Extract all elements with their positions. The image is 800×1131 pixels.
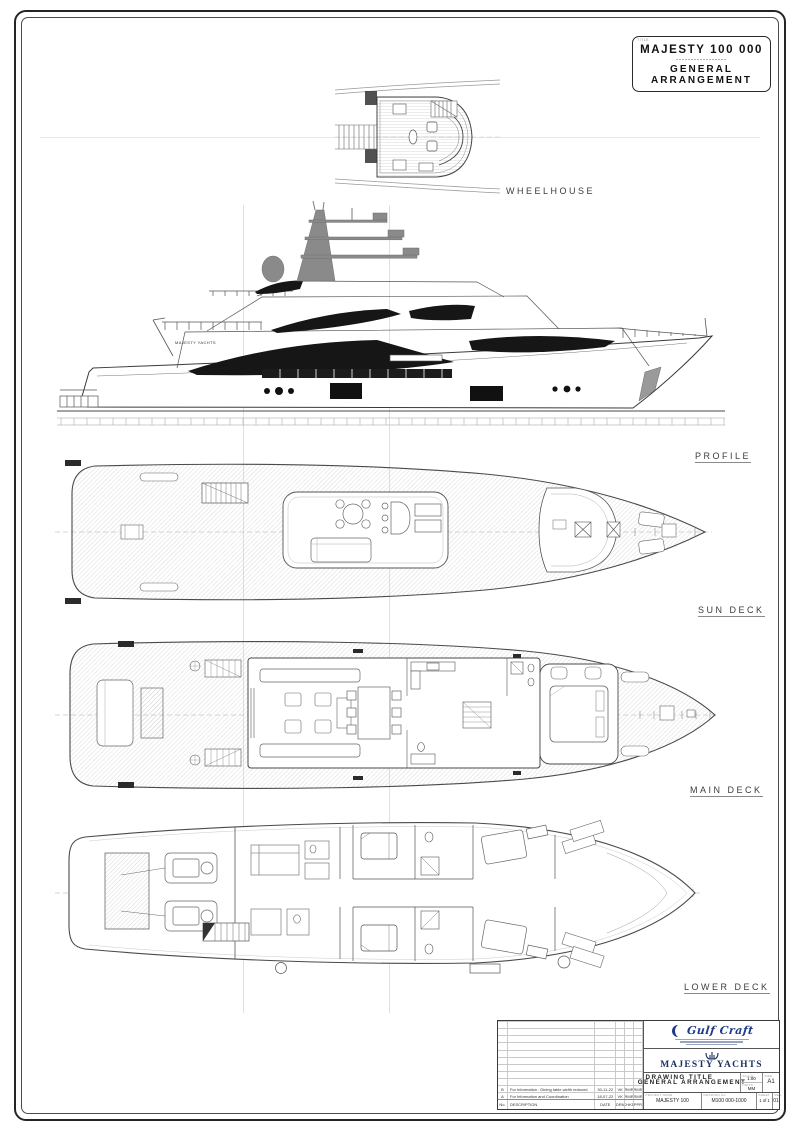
master-stateroom xyxy=(540,664,618,764)
size-value: A1 xyxy=(767,1079,774,1085)
wheelhouse-stairs xyxy=(431,101,457,117)
revision-value: 01 xyxy=(773,1098,779,1104)
lower-deck-plan-drawing xyxy=(55,813,700,979)
revision-row xyxy=(498,1057,643,1064)
sheet-number: 1 of 1 xyxy=(759,1098,769,1103)
revision-row: BFor Information : Dining table width re… xyxy=(498,1085,643,1092)
builder-logo-cell: Gulf Craft xyxy=(644,1021,779,1048)
interior-salon xyxy=(248,658,540,768)
title-box-tag: TITLE xyxy=(637,38,649,42)
rev-label: REV. xyxy=(775,1093,783,1097)
sun-deck-sofa xyxy=(311,538,371,562)
revision-cell-description: DESCRIPTION xyxy=(508,1100,595,1109)
company-block: Gulf Craft MAJESTY YACHTS DRAWING TITLE … xyxy=(644,1021,779,1109)
revision-row xyxy=(498,1078,643,1085)
revision-row xyxy=(498,1035,643,1042)
revision-cell-no: No. xyxy=(498,1100,508,1109)
lower-stairs xyxy=(203,923,249,941)
title-block: BFor Information : Dining table width re… xyxy=(497,1020,780,1110)
mast-and-antennas xyxy=(262,201,419,282)
sun-deck-plan-drawing xyxy=(55,458,712,606)
drawing-type-line2: ARRANGEMENT xyxy=(633,75,770,86)
revision-cell-drn: DRN xyxy=(616,1100,625,1109)
model-name: MAJESTY 100 000 xyxy=(633,44,770,56)
drawing-no-label: DRAWING No. xyxy=(704,1093,727,1097)
central-stairs xyxy=(463,702,491,728)
revision-table: BFor Information : Dining table width re… xyxy=(498,1021,644,1109)
sheet-size-cell: SIZE A1 xyxy=(763,1073,779,1091)
brand-cell: MAJESTY YACHTS xyxy=(644,1048,779,1072)
trident-icon xyxy=(705,1052,719,1060)
crescent-icon xyxy=(669,1024,684,1038)
wheelhouse-plan-drawing xyxy=(335,75,500,195)
drawing-type-line1: GENERAL xyxy=(633,64,770,75)
waterline-and-stations xyxy=(57,411,725,425)
sheet-label: SHEET xyxy=(759,1093,771,1097)
revision-cell-apprd: APPRD xyxy=(634,1100,643,1109)
revision-cell-date: DATE xyxy=(595,1100,616,1109)
units-label: UNITS xyxy=(743,1083,754,1087)
project-name: MAJESTY 100 xyxy=(656,1098,689,1104)
drawing-number: M100 000-1000 xyxy=(711,1098,746,1104)
revision-row xyxy=(498,1064,643,1071)
drawing-number-cell: DRAWING No. M100 000-1000 xyxy=(702,1093,757,1109)
hull-brand-text: MAJESTY YACHTS xyxy=(175,340,216,345)
view-label-lower-deck: LOWER DECK xyxy=(684,982,770,994)
revision-row: AFor Information and Coordination18-07-2… xyxy=(498,1092,643,1099)
dining-area xyxy=(347,687,401,739)
title-separator: ----------------- xyxy=(633,57,770,63)
sheet-number-cell: SHEET 1 of 1 xyxy=(757,1093,773,1109)
revision-row xyxy=(498,1050,643,1057)
view-label-sun-deck: SUN DECK xyxy=(698,605,765,617)
brand-name: MAJESTY YACHTS xyxy=(660,1060,763,1070)
revision-row xyxy=(498,1042,643,1049)
drawing-title-box: TITLE MAJESTY 100 000 ----------------- … xyxy=(632,36,771,92)
drawing-title-label: DRAWING TITLE xyxy=(646,1074,714,1081)
revision-header-row: No.DESCRIPTIONDATEDRNCHKDAPPRD xyxy=(498,1099,643,1109)
view-label-wheelhouse: WHEELHOUSE xyxy=(506,186,595,197)
main-deck-plan-drawing xyxy=(55,636,718,794)
sun-deck-stairs xyxy=(202,483,248,503)
view-label-wheelhouse-wrap: WHEELHOUSE xyxy=(506,181,595,199)
hardtop-opening xyxy=(283,492,448,568)
builder-address-lines xyxy=(675,1039,749,1045)
ga-drawing-sheet: { "sheet": { "title_box": { "tag": "TITL… xyxy=(0,0,800,1131)
view-label-main-deck: MAIN DECK xyxy=(690,785,763,797)
window-mullion-strip xyxy=(262,369,452,378)
project-name-cell: PROJECT NAME MAJESTY 100 xyxy=(644,1093,702,1109)
profile-view-drawing: MAJESTY YACHTS xyxy=(57,200,725,432)
view-label-sun-deck-wrap: SUN DECK xyxy=(698,600,765,618)
revision-row xyxy=(498,1021,643,1028)
builder-name: Gulf Craft xyxy=(687,1024,755,1037)
scale-cell: SCALE 1:80 UNITS MM xyxy=(741,1073,763,1091)
scale-label: SCALE xyxy=(743,1074,754,1078)
revision-cell: REV. 01 xyxy=(773,1093,779,1109)
size-label: SIZE xyxy=(765,1074,773,1078)
revision-row xyxy=(498,1028,643,1035)
revision-cell-chkd: CHKD xyxy=(625,1100,634,1109)
side-fin-marks xyxy=(365,91,377,163)
view-label-lower-deck-wrap: LOWER DECK xyxy=(684,977,770,995)
revision-row xyxy=(498,1071,643,1078)
project-label: PROJECT NAME xyxy=(646,1093,673,1097)
view-label-main-deck-wrap: MAIN DECK xyxy=(690,780,763,798)
drawing-title-cell: DRAWING TITLE GENERAL ARRANGEMENT xyxy=(644,1073,741,1091)
